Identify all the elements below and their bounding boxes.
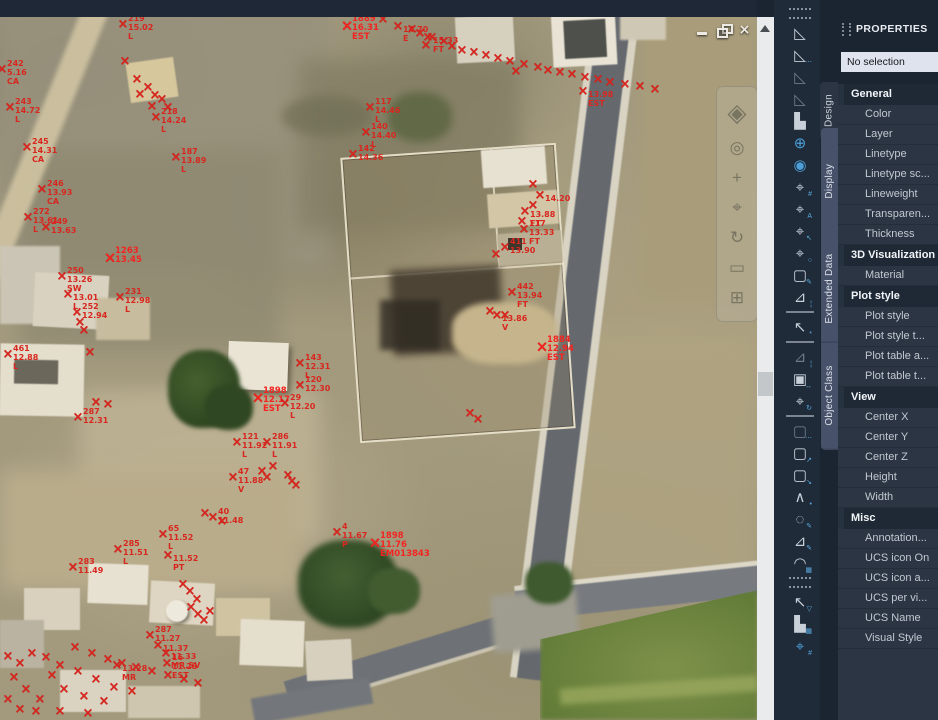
selection-cursor-icon[interactable]: ↖* <box>787 316 813 338</box>
x-marker-icon: × <box>79 689 90 704</box>
x-marker-icon: × <box>73 664 84 679</box>
x-marker-icon: × <box>31 704 42 719</box>
x-marker-icon: × <box>132 72 143 87</box>
property-row[interactable]: UCS Name <box>838 609 938 629</box>
x-marker-icon: × <box>593 72 604 87</box>
x-marker-icon: × <box>103 397 114 412</box>
x-marker-icon: × <box>605 75 616 90</box>
navigation-bar[interactable]: ◈◎+⌖↻▭⊞ <box>716 86 757 322</box>
point-filter-icon[interactable]: ⌖# <box>787 635 813 657</box>
point-label: 24514.31CA <box>32 137 57 164</box>
point-label: 188916.31EST <box>352 15 379 42</box>
x-marker-icon: × <box>9 670 20 685</box>
palette-titlebar[interactable]: PROPERTIES <box>838 18 938 40</box>
property-row[interactable]: UCS icon On <box>838 549 938 569</box>
property-row[interactable]: Plot table t... <box>838 367 938 387</box>
point-hash-icon[interactable]: ⌖# <box>787 176 813 198</box>
x-marker-icon: × <box>481 48 492 63</box>
point-label: 21915.02L <box>128 14 153 41</box>
x-marker-icon: × <box>528 177 539 192</box>
dashed-rect-icon[interactable]: ▢⋯ <box>787 420 813 442</box>
x-marker-icon: × <box>262 435 273 450</box>
circle-modify-icon[interactable]: ◌✎ <box>787 508 813 530</box>
x-marker-icon: × <box>500 308 511 323</box>
x-marker-icon: × <box>41 220 52 235</box>
x-marker-icon: × <box>91 672 102 687</box>
point-label: 188412.94EST <box>547 336 574 363</box>
x-marker-icon: × <box>158 527 169 542</box>
x-marker-icon: × <box>63 287 74 302</box>
point-label: 11.52PT <box>173 545 198 572</box>
x-marker-icon: × <box>491 247 502 262</box>
point-label: 126313.45 <box>115 247 142 265</box>
point-label: 25212.94 <box>82 302 107 320</box>
close-icon[interactable]: × <box>737 24 752 38</box>
point-rotate-icon[interactable]: ⌖↻ <box>787 390 813 412</box>
blocks-icon[interactable]: ▙ <box>787 110 813 132</box>
property-row[interactable]: Lineweight <box>838 185 938 205</box>
tab-object-class[interactable]: Object Class <box>821 342 838 450</box>
property-row[interactable]: Height <box>838 468 938 488</box>
property-row[interactable]: Plot style <box>838 307 938 327</box>
property-row[interactable]: Annotation... <box>838 529 938 549</box>
x-marker-icon: × <box>635 79 646 94</box>
point-label: 24913.63 <box>51 217 76 235</box>
x-marker-icon: × <box>578 84 589 99</box>
profile-dashed-icon[interactable]: ⊿¦ <box>787 286 813 308</box>
orbit-icon[interactable]: ↻ <box>730 223 744 253</box>
point-label: 28611.91L <box>272 432 297 459</box>
property-row[interactable]: Color <box>838 105 938 125</box>
x-marker-icon: × <box>147 99 158 114</box>
point-cursor-icon[interactable]: ⌖↖ <box>787 220 813 242</box>
palette-grip-icon[interactable] <box>842 23 851 36</box>
section-header[interactable]: 3D Visualization <box>838 245 938 266</box>
layout-grid-icon[interactable]: ⊞ <box>730 283 744 313</box>
filter-cursor-icon[interactable]: ↖▽ <box>787 591 813 613</box>
autocad-application: ×21915.02L×188916.31EST×14.70E×15.33FT×1… <box>0 0 938 720</box>
point-label: 14214.36 <box>358 144 383 162</box>
x-marker-icon: × <box>580 70 591 85</box>
palette-tab-group: DisplayExtended DataObject Class <box>821 128 838 450</box>
scrollbar-thumb[interactable] <box>758 372 773 396</box>
property-row[interactable]: Width <box>838 488 938 508</box>
properties-palette: Design DisplayExtended DataObject Class … <box>820 0 938 720</box>
x-marker-icon: × <box>543 63 554 78</box>
x-marker-icon: × <box>5 100 16 115</box>
x-marker-icon: × <box>85 345 96 360</box>
x-marker-icon: × <box>555 65 566 80</box>
side-toolbar-column: ◺◺⋯◺◺▙⊕◉⌖#⌖A⌖↖⌖○▢✎⊿¦↖*⊿¦▣↔⌖↻▢⋯▢↗▢↘∧•◌✎⊿✎… <box>774 0 820 720</box>
property-row[interactable]: Plot table a... <box>838 347 938 367</box>
box-3d-icon[interactable]: ▣↔ <box>787 368 813 390</box>
x-marker-icon: × <box>361 125 372 140</box>
x-marker-icon: × <box>205 604 216 619</box>
x-marker-icon: × <box>228 470 239 485</box>
surface-dashed-icon[interactable]: ◺⋯ <box>787 44 813 66</box>
x-marker-icon: × <box>262 470 273 485</box>
point-label: 2912.20L <box>290 393 315 420</box>
point-label: 11714.46L <box>375 97 400 124</box>
polyline-nodes-icon[interactable]: ∧• <box>787 486 813 508</box>
point-label: 23112.98L <box>125 287 150 314</box>
drawing-window-controls: × <box>695 24 752 38</box>
blocks-grid-icon[interactable]: ▙▦ <box>787 613 813 635</box>
x-marker-icon: × <box>469 45 480 60</box>
palette-content: PROPERTIES No selection GeneralColorLaye… <box>838 0 938 720</box>
x-marker-icon: × <box>457 43 468 58</box>
stretch-rect-icon[interactable]: ▢↗ <box>787 442 813 464</box>
x-marker-icon: × <box>131 660 142 675</box>
x-marker-icon: × <box>118 17 129 32</box>
triangle-modify-icon[interactable]: ⊿✎ <box>787 530 813 552</box>
x-marker-icon: × <box>348 147 359 162</box>
edit-box-icon[interactable]: ▢✎ <box>787 264 813 286</box>
property-row[interactable]: Linetype <box>838 145 938 165</box>
point-label: 24314.72L <box>15 97 40 124</box>
x-marker-icon: × <box>135 87 146 102</box>
x-marker-icon: × <box>567 67 578 82</box>
x-marker-icon: × <box>23 210 34 225</box>
x-marker-icon: × <box>332 525 343 540</box>
point-label: 28511.51L <box>123 539 148 566</box>
x-marker-icon: × <box>528 198 539 213</box>
point-label: 411.67P <box>342 522 367 549</box>
x-marker-icon: × <box>41 650 52 665</box>
property-row[interactable]: UCS per vi... <box>838 589 938 609</box>
x-marker-icon: × <box>163 100 174 115</box>
point-zoom-icon[interactable]: ⌖○ <box>787 242 813 264</box>
x-marker-icon: × <box>365 100 376 115</box>
point-label: 28311.49 <box>78 557 103 575</box>
property-row[interactable]: Plot style t... <box>838 327 938 347</box>
x-marker-icon: × <box>485 304 496 319</box>
x-marker-icon: × <box>117 656 128 671</box>
x-marker-icon: × <box>295 378 306 393</box>
point-label: 189811.76EM013843 <box>380 532 430 559</box>
x-marker-icon: × <box>3 649 14 664</box>
x-marker-icon: × <box>280 396 291 411</box>
section-header[interactable]: Plot style <box>838 286 938 307</box>
x-marker-icon: × <box>232 435 243 450</box>
viewport-top-strip <box>0 0 757 17</box>
x-marker-icon: × <box>493 51 504 66</box>
x-marker-icon: × <box>113 542 124 557</box>
section-header[interactable]: Misc <box>838 508 938 529</box>
property-row[interactable]: Center Z <box>838 448 938 468</box>
x-marker-icon: × <box>73 410 84 425</box>
tab-display[interactable]: Display <box>821 128 838 235</box>
x-marker-icon: × <box>59 682 70 697</box>
x-marker-icon: × <box>163 548 174 563</box>
property-row[interactable]: Center Y <box>838 428 938 448</box>
x-marker-icon: × <box>127 684 138 699</box>
x-marker-icon: × <box>511 64 522 79</box>
property-row[interactable]: Center X <box>838 408 938 428</box>
point-label: 2425.16CA <box>7 59 27 86</box>
x-marker-icon: × <box>295 356 306 371</box>
x-marker-icon: × <box>217 514 228 529</box>
selection-dropdown[interactable]: No selection <box>841 52 938 72</box>
x-marker-icon: × <box>109 680 120 695</box>
blue-sphere-icon[interactable]: ◉ <box>787 154 813 176</box>
point-label: 24613.93CA <box>47 179 72 206</box>
x-marker-icon: × <box>70 640 81 655</box>
x-marker-icon: × <box>421 38 432 53</box>
point-label: 18713.89L <box>181 147 206 174</box>
point-label: 41113.90 <box>510 237 535 255</box>
minimize-icon[interactable] <box>695 24 710 38</box>
property-row[interactable]: Material <box>838 266 938 286</box>
toolbar-separator <box>786 415 814 417</box>
x-marker-icon: × <box>163 668 174 683</box>
x-marker-icon: × <box>91 395 102 410</box>
dashed-view-icon[interactable]: ⊿¦ <box>787 346 813 368</box>
scroll-up-arrow-icon[interactable] <box>760 25 770 32</box>
property-row[interactable]: Visual Style <box>838 629 938 649</box>
x-marker-icon: × <box>22 140 33 155</box>
toolbar-separator <box>786 341 814 343</box>
x-marker-icon: × <box>55 704 66 719</box>
x-marker-icon: × <box>27 646 38 661</box>
surface-triangle-icon[interactable]: ◺ <box>787 22 813 44</box>
x-marker-icon: × <box>393 19 404 34</box>
toolbar-grip[interactable] <box>789 8 811 19</box>
x-marker-icon: × <box>83 706 94 720</box>
point-label: 12012.30 <box>305 375 330 393</box>
showmotion-icon[interactable]: ▭ <box>729 253 745 283</box>
x-marker-icon: × <box>21 682 32 697</box>
property-row[interactable]: Thickness <box>838 225 938 245</box>
x-marker-icon: × <box>200 506 211 521</box>
x-marker-icon: × <box>15 702 26 717</box>
property-row[interactable]: Transparen... <box>838 205 938 225</box>
tab-extended-data[interactable]: Extended Data <box>821 235 838 343</box>
drawing-viewport[interactable]: ×21915.02L×188916.31EST×14.70E×15.33FT×1… <box>0 0 757 720</box>
property-row[interactable]: Layer <box>838 125 938 145</box>
x-marker-icon: × <box>87 646 98 661</box>
survey-points-layer: ×21915.02L×188916.31EST×14.70E×15.33FT×1… <box>0 0 757 720</box>
globe-grid-icon[interactable]: ⊕ <box>787 132 813 154</box>
x-marker-icon: × <box>79 323 90 338</box>
arc-calc-icon[interactable]: ◠▦ <box>787 552 813 574</box>
x-marker-icon: × <box>291 478 302 493</box>
restore-icon[interactable] <box>716 24 731 38</box>
x-marker-icon: × <box>517 214 528 229</box>
x-marker-icon: × <box>620 77 631 92</box>
zoom-icon[interactable]: ⌖ <box>732 193 742 223</box>
side-toolbar: ◺◺⋯◺◺▙⊕◉⌖#⌖A⌖↖⌖○▢✎⊿¦↖*⊿¦▣↔⌖↻▢⋯▢↗▢↘∧•◌✎⊿✎… <box>774 0 820 657</box>
property-sections: GeneralColorLayerLinetypeLinetype sc...L… <box>838 84 938 720</box>
x-marker-icon: × <box>473 412 484 427</box>
x-marker-icon: × <box>15 656 26 671</box>
x-marker-icon: × <box>3 347 14 362</box>
pan-icon[interactable]: + <box>732 163 742 193</box>
property-row[interactable]: Linetype sc... <box>838 165 938 185</box>
point-label: 46112.88L <box>13 344 38 371</box>
palette-title-text: PROPERTIES <box>856 23 928 35</box>
point-label-icon[interactable]: ⌖A <box>787 198 813 220</box>
x-marker-icon: × <box>68 560 79 575</box>
x-marker-icon: × <box>47 668 58 683</box>
vertical-scrollbar[interactable] <box>757 17 774 720</box>
x-marker-icon: × <box>507 285 518 300</box>
property-row[interactable]: UCS icon a... <box>838 569 938 589</box>
toolbar-separator <box>786 311 814 313</box>
viewcube-icon[interactable]: ◈ <box>727 93 746 133</box>
x-marker-icon: × <box>57 269 68 284</box>
x-marker-icon: × <box>171 150 182 165</box>
palette-tab-strip: Design DisplayExtended DataObject Class <box>820 0 838 720</box>
surface-dim-icon[interactable]: ◺ <box>787 66 813 88</box>
steering-wheel-icon[interactable]: ◎ <box>730 133 745 163</box>
x-marker-icon: × <box>37 182 48 197</box>
x-marker-icon: × <box>120 54 131 69</box>
x-marker-icon: × <box>179 672 190 687</box>
x-marker-icon: × <box>147 664 158 679</box>
section-header[interactable]: View <box>838 387 938 408</box>
scale-rect-icon[interactable]: ▢↘ <box>787 464 813 486</box>
surface-outline-icon[interactable]: ◺ <box>787 88 813 110</box>
x-marker-icon: × <box>115 290 126 305</box>
x-marker-icon: × <box>99 694 110 709</box>
toolbar-grip[interactable] <box>789 577 811 588</box>
x-marker-icon: × <box>650 82 661 97</box>
section-header[interactable]: General <box>838 84 938 105</box>
x-marker-icon: × <box>103 652 114 667</box>
x-marker-icon: × <box>3 692 14 707</box>
x-marker-icon: × <box>193 676 204 691</box>
